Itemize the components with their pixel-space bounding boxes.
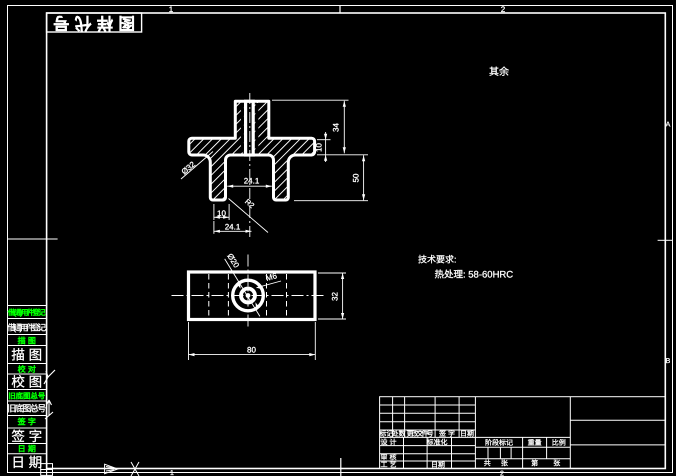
- svg-text:80: 80: [247, 346, 256, 355]
- svg-text:2: 2: [501, 5, 506, 14]
- svg-text:热处理: 58-60HRC: 热处理: 58-60HRC: [435, 270, 514, 281]
- svg-text:24.1: 24.1: [225, 223, 241, 232]
- svg-text:签 字: 签 字: [18, 418, 36, 427]
- svg-text:10: 10: [315, 143, 324, 152]
- svg-text:设 计: 设 计: [381, 438, 397, 446]
- svg-text:日 期: 日 期: [11, 455, 42, 470]
- svg-text:工 艺: 工 艺: [381, 461, 397, 469]
- svg-text:32: 32: [330, 292, 339, 301]
- svg-text:张: 张: [501, 460, 508, 468]
- svg-text:处数: 处数: [392, 430, 406, 438]
- svg-text:日期: 日期: [460, 430, 474, 438]
- svg-text:签 字: 签 字: [439, 430, 455, 438]
- svg-text:34: 34: [332, 123, 341, 132]
- svg-text:签 字: 签 字: [11, 429, 42, 444]
- svg-text:旧底图总号: 旧底图总号: [8, 392, 45, 401]
- svg-text:重量: 重量: [528, 439, 542, 447]
- svg-text:日 期: 日 期: [18, 445, 36, 454]
- svg-text:B: B: [666, 358, 671, 365]
- svg-text:描 图: 描 图: [18, 337, 36, 346]
- svg-text:10: 10: [217, 209, 226, 218]
- svg-text:标准化: 标准化: [427, 438, 448, 446]
- svg-text:审 核: 审 核: [381, 454, 397, 462]
- svg-text:校 图: 校 图: [11, 375, 42, 390]
- svg-text:50: 50: [352, 173, 361, 182]
- svg-text:24.1: 24.1: [244, 177, 260, 186]
- svg-text:其余: 其余: [489, 66, 509, 78]
- svg-text:A: A: [666, 122, 671, 129]
- svg-text:借(通)用件登记: 借(通)用件登记: [8, 308, 47, 317]
- svg-text:日期: 日期: [431, 461, 445, 469]
- svg-text:旧底图总号: 旧底图总号: [7, 404, 46, 414]
- svg-text:第: 第: [531, 460, 538, 468]
- svg-text:2: 2: [500, 471, 504, 476]
- svg-text:技术要求:: 技术要求:: [418, 255, 457, 265]
- svg-text:借(通)用件登记: 借(通)用件登记: [7, 323, 46, 333]
- svg-text:校 对: 校 对: [18, 365, 36, 374]
- svg-text:更改文件号: 更改文件号: [407, 430, 434, 438]
- svg-text:1: 1: [170, 470, 174, 476]
- svg-text:共: 共: [484, 460, 491, 468]
- svg-text:阶段标记: 阶段标记: [485, 439, 513, 447]
- svg-text:1: 1: [169, 5, 174, 14]
- svg-text:比例: 比例: [552, 439, 566, 447]
- svg-text:描 图: 描 图: [11, 348, 42, 363]
- svg-text:张: 张: [553, 460, 560, 468]
